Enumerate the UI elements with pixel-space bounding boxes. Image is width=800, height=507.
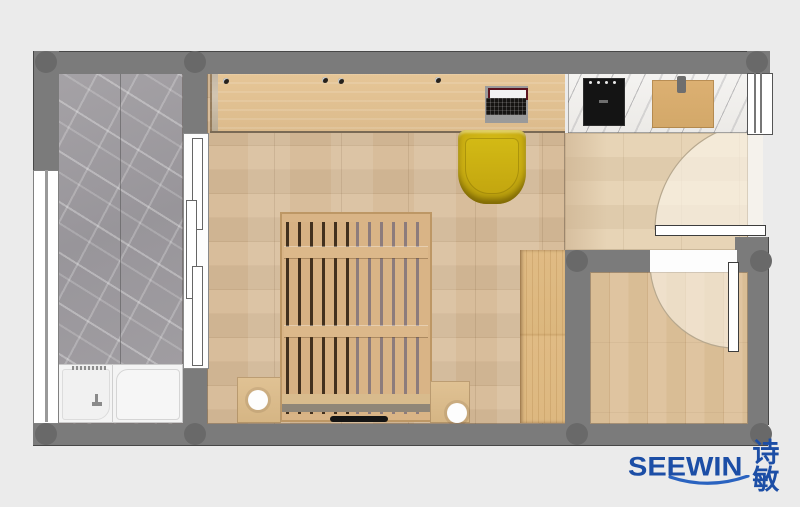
- storage-door-opening: [650, 250, 737, 272]
- wall-bath-partition-upper: [183, 73, 207, 133]
- wardrobe: [520, 250, 565, 423]
- table-lamp-left: [248, 390, 268, 410]
- bathroom-sliding-door: [183, 133, 209, 369]
- column: [750, 250, 772, 272]
- desk-screw-icon: [322, 77, 328, 83]
- bed-handle: [330, 416, 388, 422]
- cutting-board-handle: [677, 76, 686, 93]
- storage-room-floor: [590, 272, 748, 424]
- slatted-bed: [280, 212, 432, 422]
- column: [184, 51, 206, 73]
- tub-overflow-grille: [72, 366, 106, 370]
- brand-logo: SEEWIN 诗敏: [628, 450, 800, 484]
- column: [566, 423, 588, 445]
- column: [184, 423, 206, 445]
- bathroom-floor-seam: [120, 73, 121, 365]
- wall-bottom: [33, 424, 768, 446]
- column: [566, 250, 588, 272]
- floor-plan-canvas: SEEWIN 诗敏: [0, 0, 800, 507]
- bed-foot-rail: [282, 394, 430, 404]
- desk-screw-icon: [435, 77, 441, 83]
- column: [35, 51, 57, 73]
- bed-foot-trim: [282, 404, 430, 412]
- desk-chair: [458, 130, 526, 204]
- laptop: [485, 86, 528, 123]
- cooktop-knob-icon: [597, 81, 600, 84]
- wall-top: [33, 51, 770, 74]
- table-lamp-right: [447, 403, 467, 423]
- column: [746, 51, 768, 73]
- cooktop-display: [599, 100, 608, 103]
- bed-rail: [284, 247, 428, 258]
- window-right-frame: [760, 73, 762, 133]
- desk-screw-icon: [338, 78, 344, 84]
- brand-logo-chinese: 诗敏: [752, 440, 800, 494]
- faucet-icon: [92, 402, 102, 406]
- sliding-door-panel: [192, 266, 203, 366]
- entry-door-leaf: [655, 225, 766, 236]
- logo-swoosh-icon: [668, 475, 750, 489]
- entry-hall-floor-shading: [565, 133, 607, 250]
- window-right-frame: [754, 73, 756, 133]
- shower-tray: [62, 369, 110, 420]
- desk-edge-shadow: [212, 73, 218, 131]
- laptop-keyboard: [486, 98, 526, 115]
- column: [35, 423, 57, 445]
- induction-cooktop: [583, 78, 625, 126]
- cooktop-knob-icon: [589, 81, 592, 84]
- tub-basin: [116, 369, 180, 420]
- bathtub: [58, 364, 183, 423]
- bed-rail: [284, 326, 428, 337]
- tub-seam: [112, 364, 113, 423]
- cooktop-knob-icon: [605, 81, 608, 84]
- storage-door-leaf: [728, 262, 739, 352]
- window-left-mullion: [45, 170, 48, 422]
- desk-chair-seat: [465, 138, 519, 194]
- wall-bath-partition-lower: [183, 367, 207, 424]
- cooktop-knob-icon: [613, 81, 616, 84]
- wall-storage-left: [565, 250, 590, 425]
- desk-screw-icon: [223, 78, 229, 84]
